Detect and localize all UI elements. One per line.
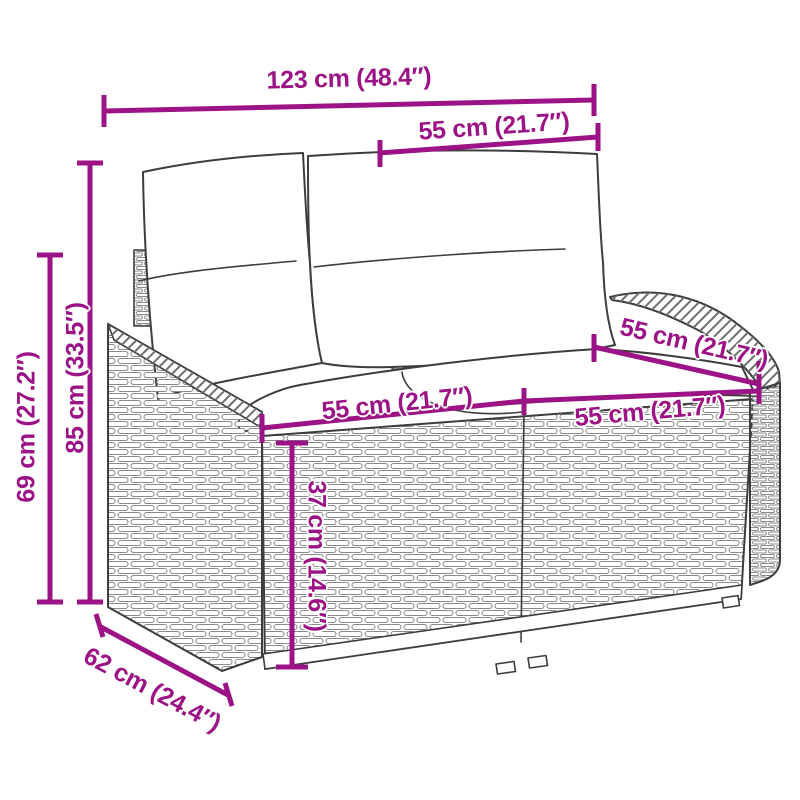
dimension-diagram-canvas: 123 cm (48.4″) 55 cm (21.7″) 85 cm (33.5… xyxy=(0,0,800,800)
dim-label-armrest-height: 69 cm (27.2″) xyxy=(13,351,42,502)
dim-label-seat-height: 37 cm (14.6″) xyxy=(302,480,331,631)
base-front xyxy=(262,399,753,674)
right-armrest-side-panel xyxy=(750,383,780,585)
right-back-cushion xyxy=(308,150,615,367)
dim-label-overall-width: 123 cm (48.4″) xyxy=(266,62,432,95)
dim-label-overall-height: 85 cm (33.5″) xyxy=(62,302,91,453)
